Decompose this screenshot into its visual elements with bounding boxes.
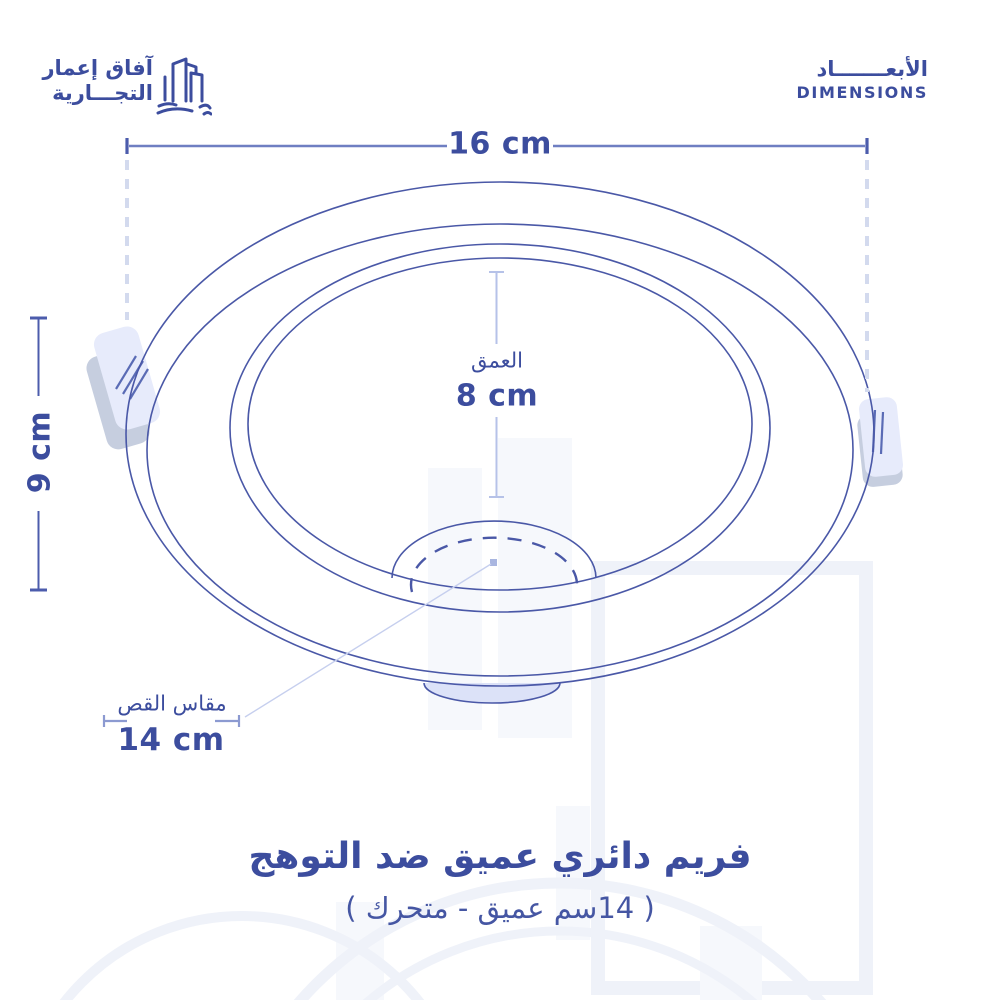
right-spring-clip bbox=[856, 396, 904, 488]
depth-label-arabic: العمق bbox=[471, 349, 523, 372]
brand-name-line2: التجـــارية bbox=[42, 81, 153, 106]
product-dimensions-sheet: { "header": { "brand": { "icon": "buildi… bbox=[0, 0, 1000, 1000]
product-subtitle: ( 14سم عميق - متحرك ) bbox=[345, 893, 655, 925]
product-title: فريم دائري عميق ضد التوهج bbox=[248, 837, 751, 877]
cut-size-label-arabic: مقاس القص bbox=[117, 692, 226, 715]
dimensions-title-english: DIMENSIONS bbox=[797, 82, 928, 104]
dimensions-header: الأبعـــــــاد DIMENSIONS bbox=[797, 56, 928, 104]
width-dimension-label: 16 cm bbox=[448, 128, 552, 161]
center-point-marker bbox=[490, 559, 497, 566]
height-dimension-label: 9 cm bbox=[24, 411, 57, 493]
dimensions-title-arabic: الأبعـــــــاد bbox=[797, 56, 928, 82]
depth-dimension-label: 8 cm bbox=[456, 380, 538, 413]
buildings-logo-icon bbox=[156, 48, 212, 118]
cut-size-dimension-label: 14 cm bbox=[117, 723, 224, 757]
brand-name-line1: آفاق إعمار bbox=[42, 56, 153, 81]
brand-name: آفاق إعمار التجـــارية bbox=[42, 56, 153, 106]
